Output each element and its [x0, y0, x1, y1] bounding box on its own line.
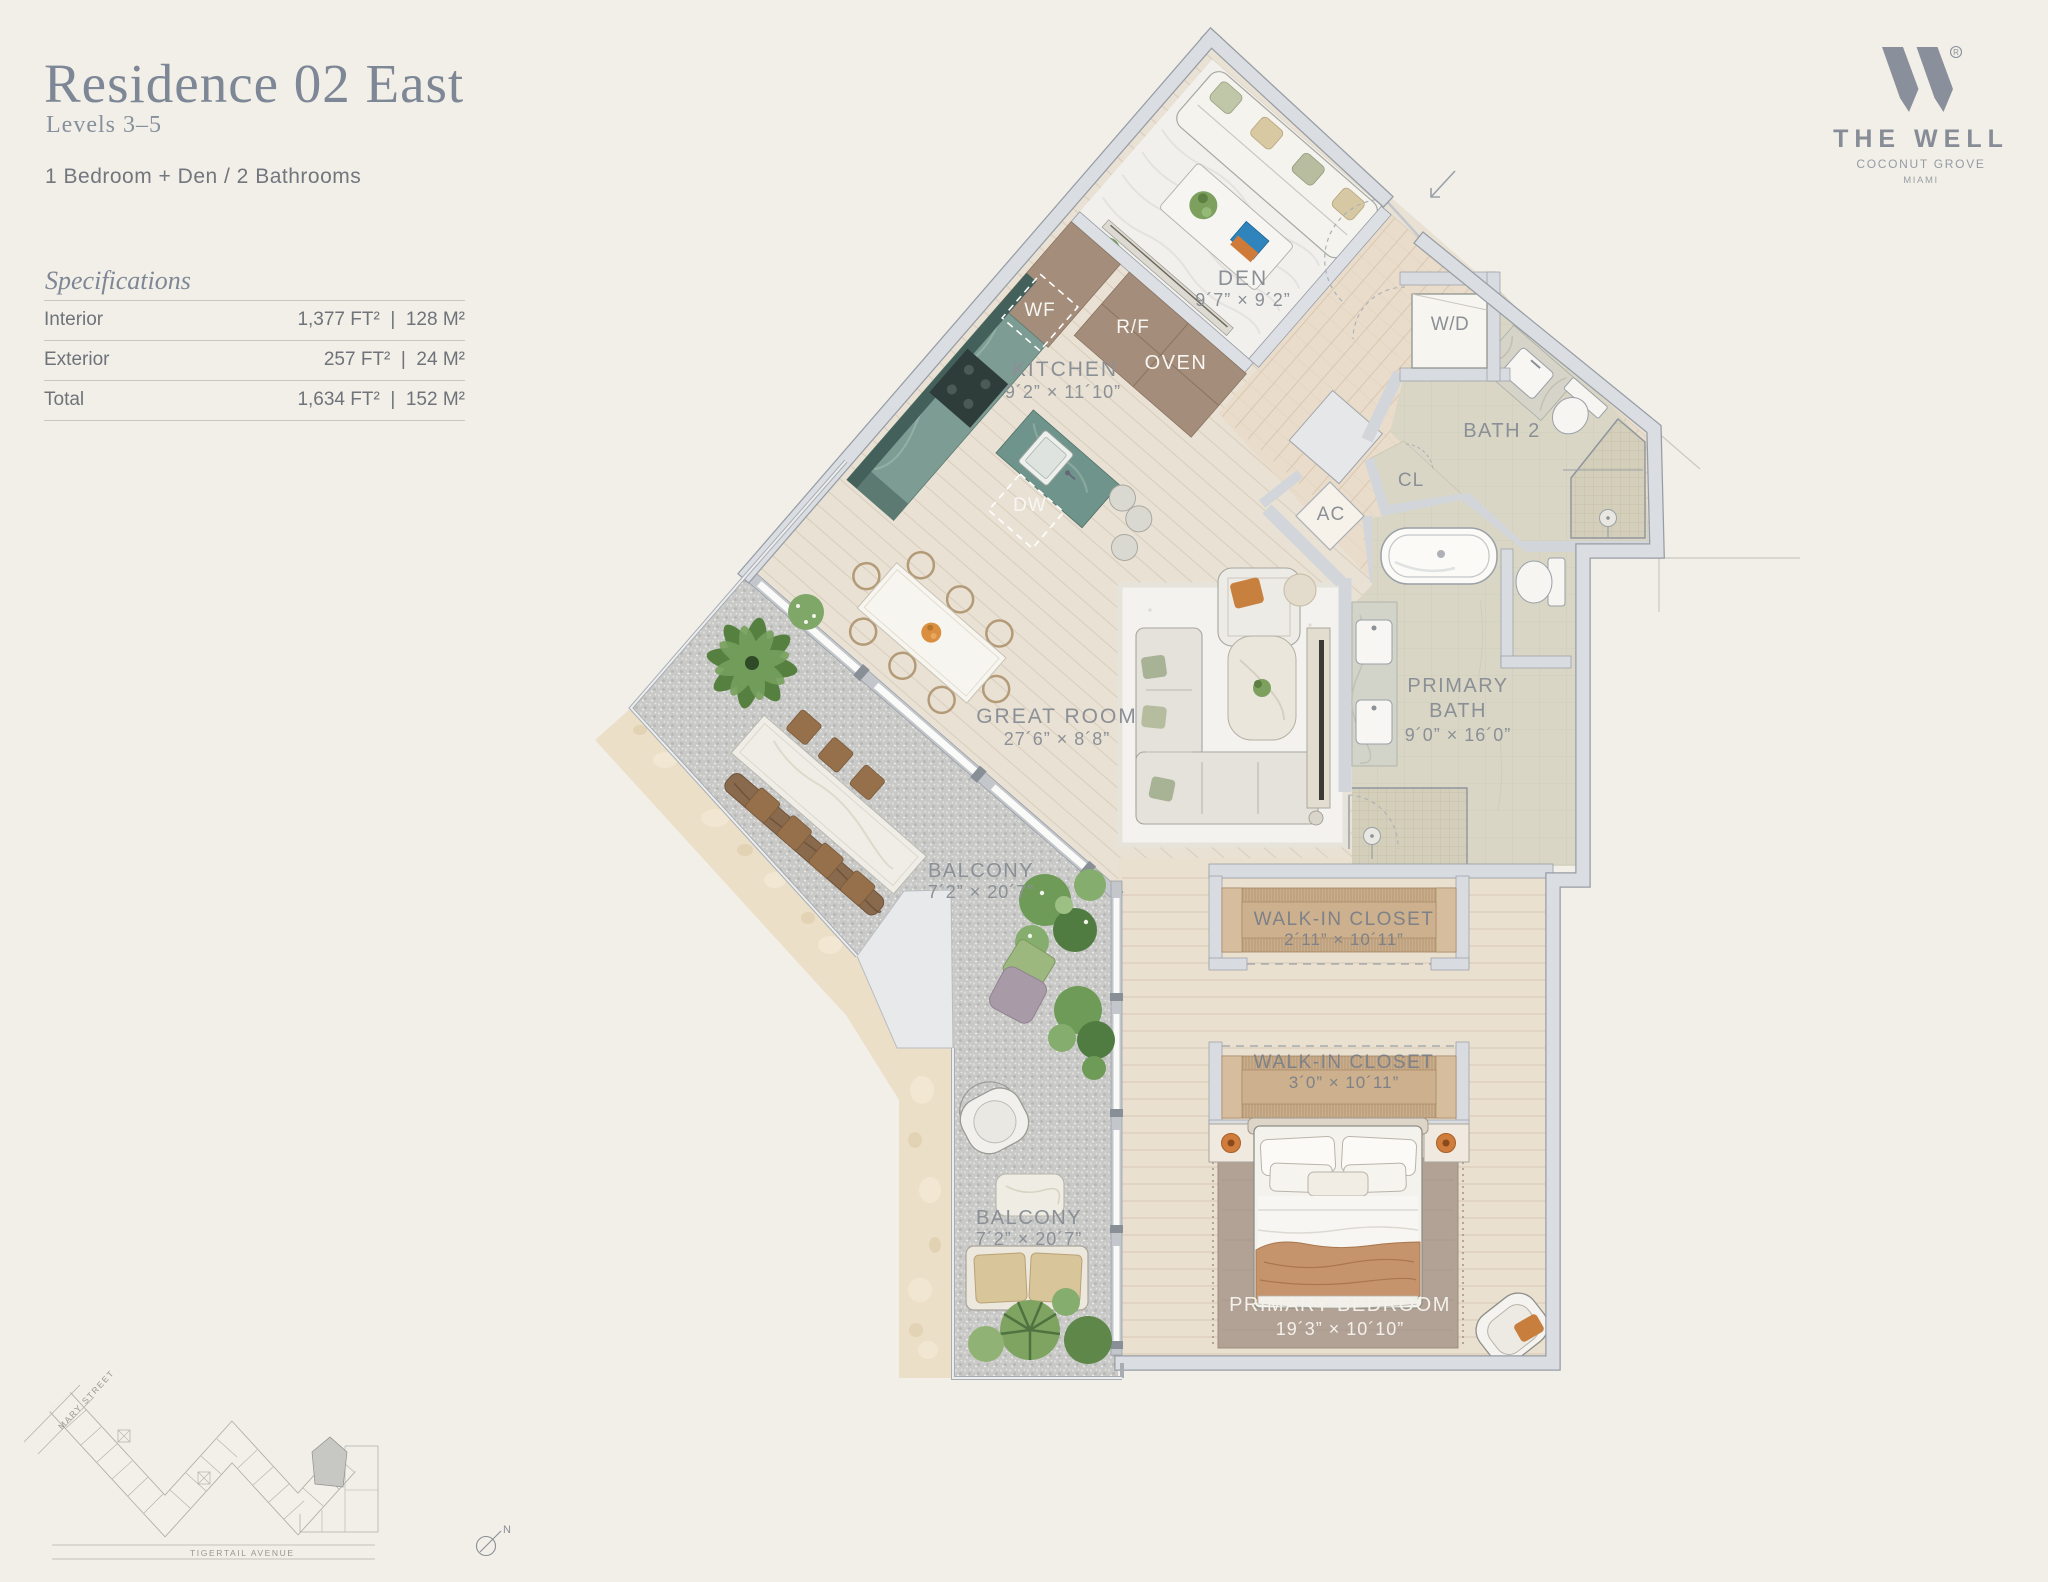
svg-text:THE WELL: THE WELL [1833, 125, 2009, 153]
svg-text:DW: DW [1013, 495, 1047, 516]
svg-text:WF: WF [1024, 300, 1056, 321]
svg-text:MIAMI: MIAMI [1903, 175, 1938, 186]
svg-text:DEN: DEN [1218, 267, 1268, 290]
svg-text:PRIMARY BEDROOM: PRIMARY BEDROOM [1229, 1294, 1451, 1316]
svg-text:CL: CL [1398, 470, 1424, 491]
svg-text:W/D: W/D [1431, 314, 1469, 335]
svg-text:BALCONY: BALCONY [928, 860, 1034, 882]
svg-text:9´0” × 16´0”: 9´0” × 16´0” [1405, 725, 1512, 745]
svg-text:WALK-IN CLOSET: WALK-IN CLOSET [1254, 909, 1435, 930]
svg-text:COCONUT GROVE: COCONUT GROVE [1856, 157, 1985, 171]
svg-text:BATH 2: BATH 2 [1463, 420, 1541, 442]
svg-text:N: N [503, 1524, 511, 1536]
svg-text:27´6” × 8´8”: 27´6” × 8´8” [1004, 729, 1111, 749]
svg-text:KITCHEN: KITCHEN [1012, 358, 1118, 381]
svg-text:9´2” × 11´10”: 9´2” × 11´10” [1005, 382, 1121, 402]
svg-text:R/F: R/F [1116, 317, 1150, 338]
svg-text:PRIMARY: PRIMARY [1407, 675, 1508, 697]
svg-text:9´7” × 9´2”: 9´7” × 9´2” [1195, 290, 1291, 310]
svg-text:19´3” × 10´10”: 19´3” × 10´10” [1276, 1319, 1405, 1339]
svg-text:2´11” × 10´11”: 2´11” × 10´11” [1284, 930, 1404, 949]
svg-text:OVEN: OVEN [1145, 352, 1208, 374]
svg-text:BATH: BATH [1429, 700, 1487, 722]
svg-text:WALK-IN CLOSET: WALK-IN CLOSET [1254, 1052, 1435, 1073]
svg-text:TIGERTAIL AVENUE: TIGERTAIL AVENUE [190, 1548, 295, 1558]
svg-text:3´0” × 10´11”: 3´0” × 10´11” [1289, 1073, 1399, 1092]
svg-text:7´2” × 20´7”: 7´2” × 20´7” [928, 882, 1035, 902]
svg-text:R: R [1953, 48, 1959, 57]
svg-text:AC: AC [1317, 504, 1345, 525]
svg-text:BALCONY: BALCONY [976, 1207, 1082, 1229]
svg-text:7´2” × 20´7”: 7´2” × 20´7” [976, 1229, 1083, 1249]
svg-text:GREAT ROOM: GREAT ROOM [976, 705, 1138, 728]
